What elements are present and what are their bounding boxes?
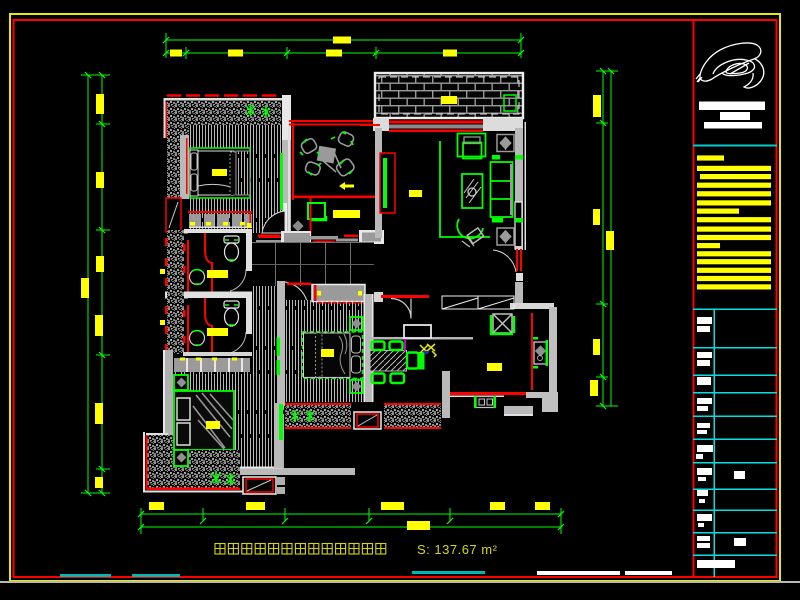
svg-text:S: 137.67 m²: S: 137.67 m² [417,542,498,557]
